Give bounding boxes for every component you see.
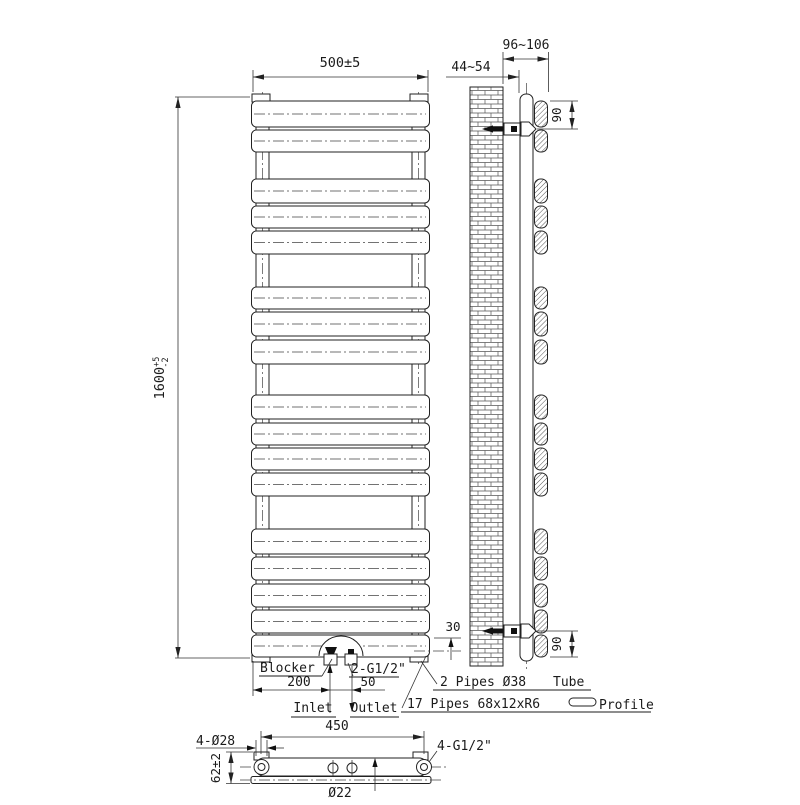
towel-radiator-drawing: 500±5 1600+5-2 200 50 Blocker 2-G1/2" In… xyxy=(0,0,800,800)
panel-section xyxy=(535,287,548,309)
panel-section xyxy=(535,130,548,152)
wall-section xyxy=(470,87,503,666)
dim-height-value: 1600 xyxy=(152,367,168,400)
panel-section xyxy=(535,179,548,203)
dim-wall-to-tube: 44~54 xyxy=(451,60,490,75)
panel-section xyxy=(535,206,548,228)
blocker-fitting xyxy=(324,654,337,665)
label-bottom-connections: 4-G1/2" xyxy=(437,739,492,754)
panel-section xyxy=(535,101,548,127)
panel-section xyxy=(535,529,548,554)
panel-section xyxy=(535,610,548,633)
panel-section xyxy=(535,395,548,419)
label-outlet: Outlet xyxy=(351,701,398,716)
callout-flat-pipes: 17 Pipes 68x12xR6 xyxy=(407,697,540,712)
side-collector-tube xyxy=(520,94,533,661)
panel-section xyxy=(535,584,548,607)
panel-section xyxy=(535,340,548,364)
label-inlet: Inlet xyxy=(293,701,332,716)
dim-bottom-clearance: 30 xyxy=(445,619,460,634)
technical-drawing-page: 500±5 1600+5-2 200 50 Blocker 2-G1/2" In… xyxy=(0,0,800,800)
panel-section xyxy=(535,635,548,657)
panel-section xyxy=(535,423,548,445)
panel-section xyxy=(535,473,548,496)
panel-section xyxy=(535,231,548,254)
label-connections: 2-G1/2" xyxy=(351,662,406,677)
dim-width: 500±5 xyxy=(320,55,361,71)
profile-shape-icon xyxy=(569,698,596,706)
dim-inlet-offset: 200 xyxy=(287,675,310,690)
label-mounting-holes: 4-Ø28 xyxy=(196,734,235,749)
panel-section xyxy=(535,312,548,336)
bottom-rail-tube xyxy=(255,758,428,776)
dim-connections-span: 450 xyxy=(325,719,348,734)
panel-section xyxy=(535,448,548,470)
callout-vertical-tubes: 2 Pipes Ø38 xyxy=(440,675,526,690)
dim-depth: 62±2 xyxy=(208,753,223,783)
dim-top-bracket: 90 xyxy=(549,107,564,122)
label-blocker: Blocker xyxy=(260,661,315,676)
dim-bottom-bracket: 90 xyxy=(549,636,564,651)
label-profile: Profile xyxy=(599,698,654,713)
dim-height-tol-lower: -2 xyxy=(161,357,171,367)
panel-section xyxy=(535,557,548,580)
dim-wall-to-panel: 96~106 xyxy=(503,38,550,53)
dim-pipe-diameter: Ø22 xyxy=(328,786,351,800)
label-tube: Tube xyxy=(553,675,584,690)
outlet-valve-icon xyxy=(348,649,354,654)
